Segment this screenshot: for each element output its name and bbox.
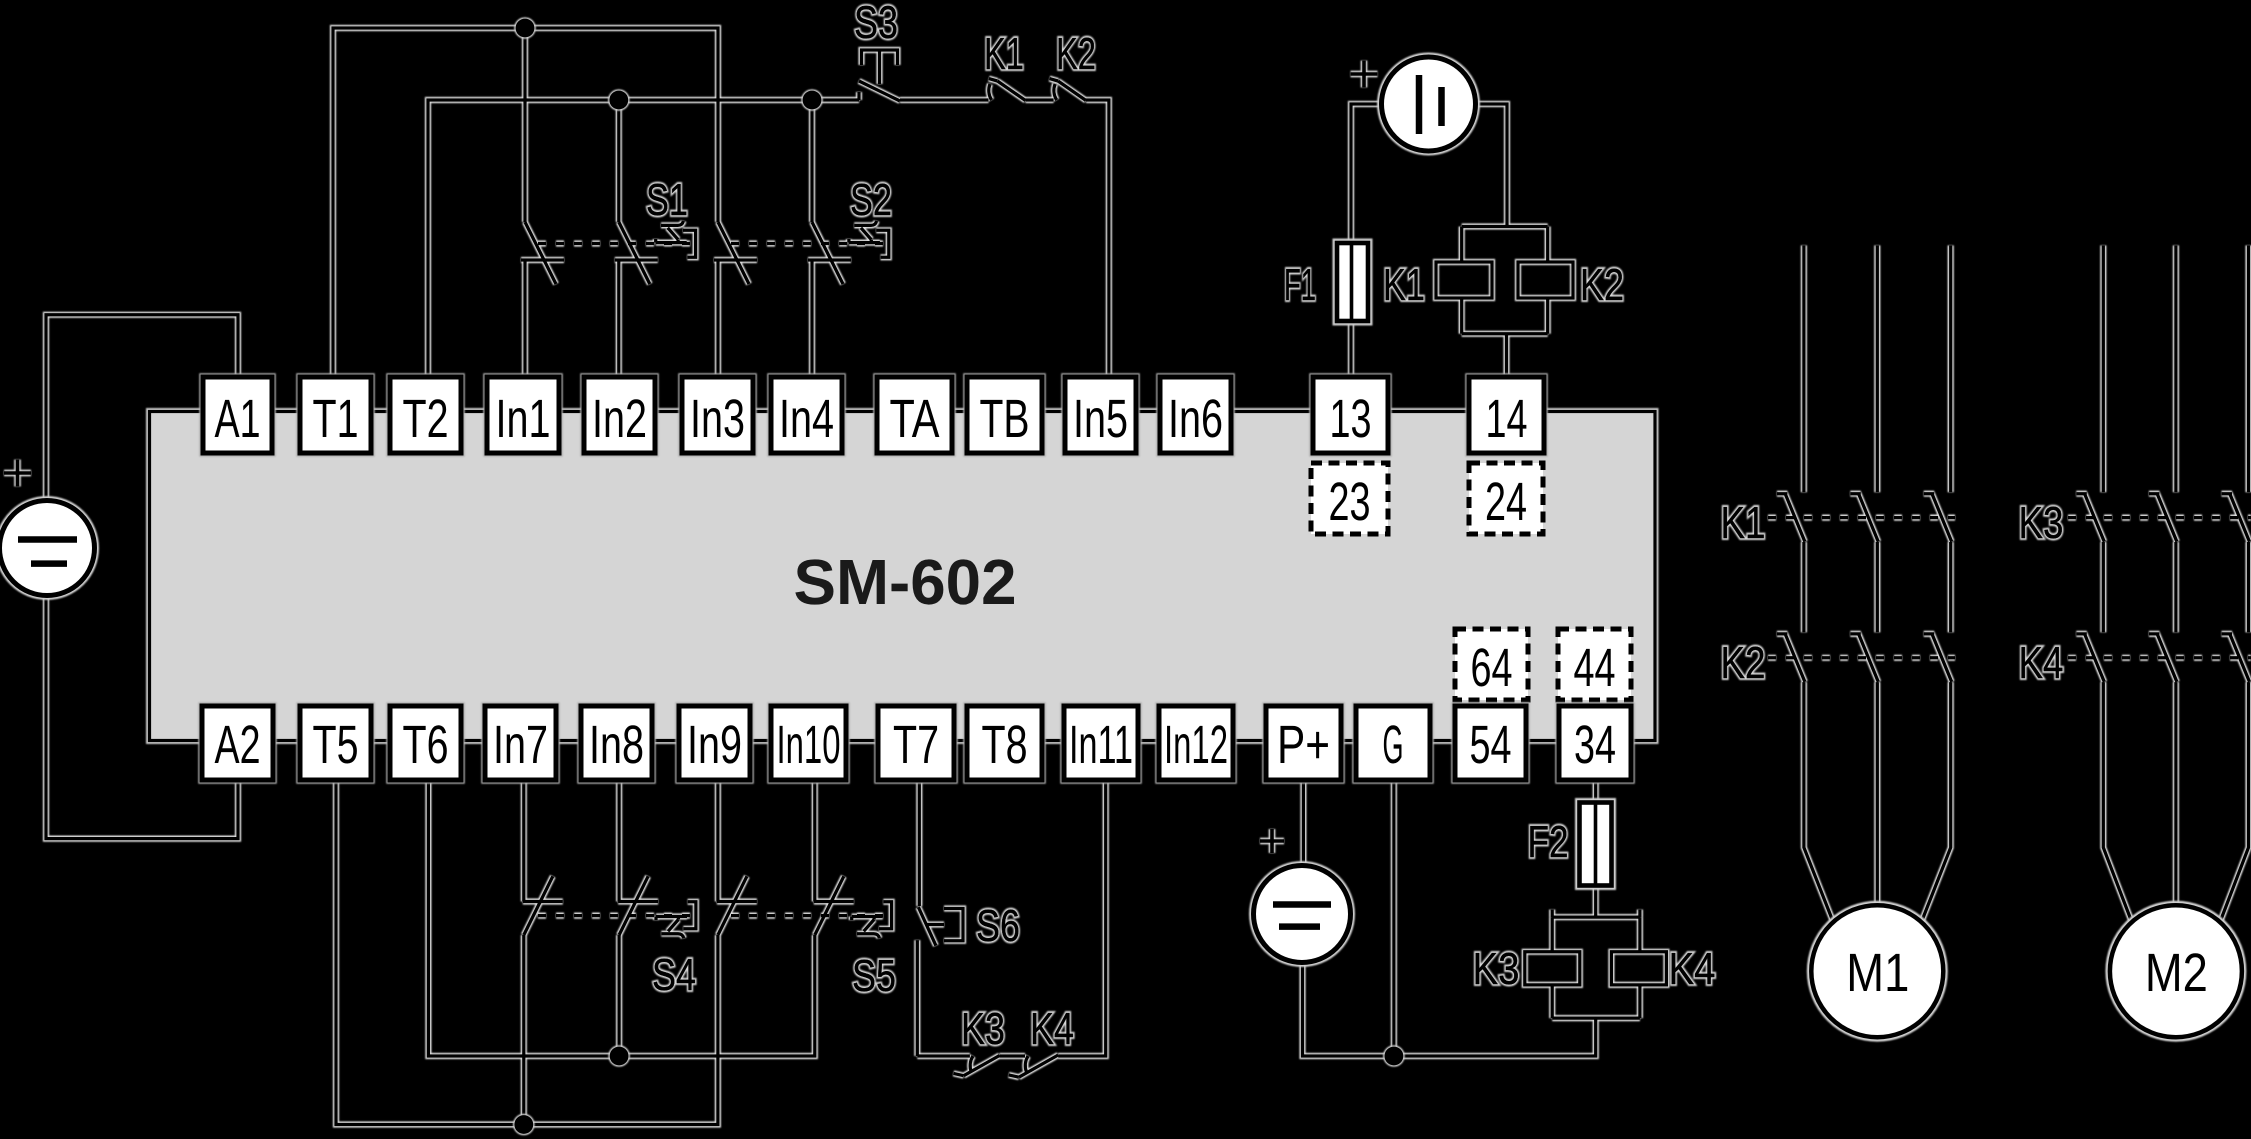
svg-text:S1: S1 (646, 174, 688, 225)
svg-text:S4: S4 (652, 949, 696, 1000)
svg-text:SM-602: SM-602 (794, 546, 1017, 618)
svg-text:K3: K3 (961, 1003, 1005, 1054)
svg-text:In3: In3 (690, 389, 745, 449)
svg-text:P+: P+ (1277, 715, 1330, 775)
svg-text:S5: S5 (852, 950, 896, 1001)
svg-text:54: 54 (1470, 715, 1512, 775)
svg-text:In4: In4 (779, 389, 834, 449)
svg-text:K2: K2 (1056, 28, 1096, 79)
svg-text:K1: K1 (1383, 259, 1425, 310)
svg-text:K4: K4 (1669, 943, 1716, 994)
svg-text:In12: In12 (1164, 715, 1228, 775)
svg-text:In2: In2 (592, 389, 647, 449)
svg-text:T6: T6 (403, 715, 449, 775)
svg-text:K2: K2 (1721, 637, 1766, 688)
svg-text:TB: TB (980, 389, 1030, 449)
svg-text:In1: In1 (496, 389, 551, 449)
svg-text:T2: T2 (403, 389, 449, 449)
svg-text:In10: In10 (777, 715, 841, 775)
svg-text:13: 13 (1330, 389, 1372, 449)
svg-text:23: 23 (1329, 472, 1371, 532)
svg-text:64: 64 (1471, 638, 1513, 698)
svg-text:T7: T7 (893, 715, 939, 775)
svg-text:K3: K3 (1473, 943, 1520, 994)
svg-text:S3: S3 (854, 0, 898, 48)
svg-text:K3: K3 (2019, 497, 2064, 548)
svg-text:34: 34 (1574, 715, 1616, 775)
svg-text:T8: T8 (982, 715, 1028, 775)
svg-text:TA: TA (890, 389, 940, 449)
svg-text:M2: M2 (2145, 943, 2208, 1003)
svg-text:In7: In7 (493, 715, 548, 775)
svg-text:K2: K2 (1580, 259, 1624, 310)
svg-text:S6: S6 (976, 900, 1020, 951)
svg-text:F1: F1 (1284, 259, 1316, 310)
svg-text:A2: A2 (215, 715, 261, 775)
svg-text:G: G (1383, 715, 1404, 775)
svg-text:In11: In11 (1069, 715, 1133, 775)
svg-text:K1: K1 (984, 28, 1024, 79)
svg-text:K4: K4 (1030, 1003, 1074, 1054)
svg-text:14: 14 (1486, 389, 1528, 449)
svg-text:24: 24 (1485, 472, 1527, 532)
svg-text:In9: In9 (687, 715, 742, 775)
svg-text:K1: K1 (1721, 497, 1766, 548)
svg-text:K4: K4 (2019, 637, 2064, 688)
svg-text:M1: M1 (1846, 943, 1909, 1003)
svg-text:In6: In6 (1168, 389, 1223, 449)
svg-text:In8: In8 (589, 715, 644, 775)
svg-text:T1: T1 (313, 389, 359, 449)
svg-text:F2: F2 (1528, 816, 1569, 867)
svg-text:44: 44 (1574, 638, 1616, 698)
svg-text:T5: T5 (313, 715, 359, 775)
svg-text:A1: A1 (215, 389, 261, 449)
svg-text:S2: S2 (850, 174, 892, 225)
svg-text:In5: In5 (1073, 389, 1128, 449)
